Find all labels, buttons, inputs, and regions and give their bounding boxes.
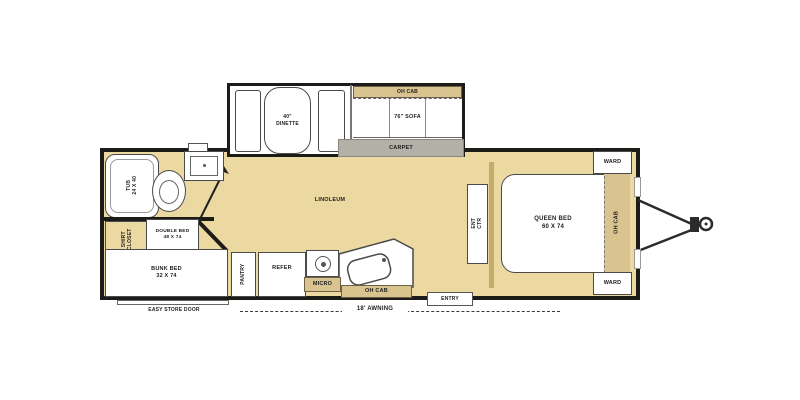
tub-label: TUB 24 X 40 <box>126 163 139 207</box>
stove-burner-center <box>321 262 326 267</box>
microwave-cabinet: MICRO <box>304 277 341 292</box>
sofa: 76" SOFA <box>353 98 462 138</box>
wardrobe-bottom: WARD <box>593 272 632 295</box>
overhead-cabinet-kitchen: OH CAB <box>341 285 412 298</box>
hitch-jack-center <box>705 223 708 226</box>
overhead-cabinet-sofa: OH CAB <box>353 86 462 98</box>
toilet-bowl <box>159 180 179 204</box>
front-wall-window-lower <box>634 249 641 269</box>
entry-label: ENTRY <box>441 296 459 302</box>
rv-floorplan: 40" DINETTE OH CAB 76" SOFA CARPET TUB 2… <box>0 0 800 400</box>
queen-bed: QUEEN BED 60 X 74 <box>501 174 605 273</box>
toilet <box>152 170 186 212</box>
overhead-cabinet-kitchen-label: OH CAB <box>365 288 388 295</box>
pantry-label: PANTRY <box>240 254 246 294</box>
dinette-bench-left <box>235 90 261 152</box>
hitch-frame-lower <box>638 229 694 251</box>
dinette-table: 40" DINETTE <box>264 87 311 154</box>
stove-counter <box>306 250 339 277</box>
wardrobe-top: WARD <box>593 151 632 174</box>
bunk-bed-label-line2: 32 X 74 <box>156 273 176 280</box>
microwave-label: MICRO <box>313 281 332 288</box>
carpet-label: CARPET <box>389 145 413 152</box>
queen-bed-label-line2: 60 X 74 <box>542 224 564 232</box>
bath-sink-counter <box>184 151 224 181</box>
easy-store-door <box>117 300 229 305</box>
overhead-cabinet-bedroom-label: OH CAB <box>614 202 621 242</box>
queen-bed-label-line1: QUEEN BED <box>534 216 571 224</box>
wardrobe-top-label: WARD <box>604 159 622 166</box>
double-bed: DOUBLE BED 48 X 74 <box>146 219 199 250</box>
double-bed-label-line2: 48 X 74 <box>164 235 182 241</box>
carpet-strip: CARPET <box>338 139 464 157</box>
bunk-bed-label-line1: BUNK BED <box>151 266 182 273</box>
awning-label: 18' AWNING <box>342 306 408 314</box>
hitch-jack-wheel <box>700 218 712 230</box>
front-wall-window-upper <box>634 177 641 197</box>
wardrobe-bottom-label: WARD <box>604 280 622 287</box>
bedroom-divider-wall <box>489 162 494 288</box>
linoleum-label: LINOLEUM <box>300 197 360 204</box>
bunk-bed: BUNK BED 32 X 74 <box>105 249 228 297</box>
dinette-label: DINETTE <box>276 121 299 127</box>
refrigerator-label: REFER <box>259 265 305 272</box>
bath-sink-drain <box>203 164 206 167</box>
hitch-frame-upper <box>638 200 694 225</box>
hitch-coupler <box>690 217 699 232</box>
entertainment-center-label: ENT CTR <box>471 208 484 238</box>
ent-ctr-line2: CTR <box>477 208 483 238</box>
tub-label-line2: 24 X 40 <box>132 163 138 207</box>
overhead-cabinet-sofa-label: OH CAB <box>397 89 418 95</box>
refrigerator: REFER <box>258 252 306 297</box>
easy-store-door-label: EASY STORE DOOR <box>133 307 215 313</box>
entry-door: ENTRY <box>427 292 473 306</box>
sofa-label: 76" SOFA <box>353 114 462 121</box>
